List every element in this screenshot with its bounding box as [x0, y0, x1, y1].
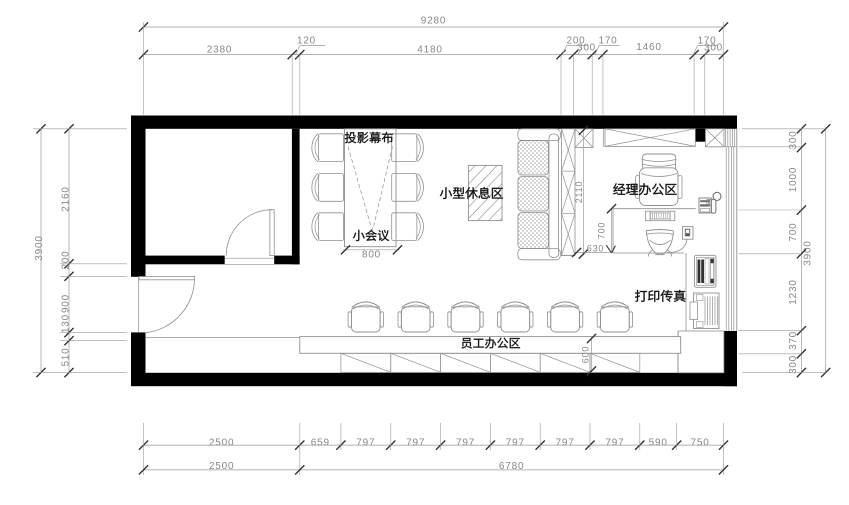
- svg-text:120: 120: [297, 36, 316, 47]
- svg-text:2160: 2160: [60, 186, 71, 211]
- svg-text:4180: 4180: [417, 44, 442, 55]
- svg-text:700: 700: [596, 222, 606, 239]
- svg-text:800: 800: [362, 250, 381, 261]
- svg-text:797: 797: [406, 437, 425, 448]
- svg-text:170: 170: [598, 36, 617, 47]
- svg-text:200: 200: [60, 250, 71, 269]
- svg-text:2500: 2500: [209, 461, 234, 472]
- svg-text:130: 130: [60, 314, 71, 333]
- svg-text:9280: 9280: [421, 16, 446, 27]
- svg-text:630: 630: [587, 243, 604, 253]
- svg-text:6780: 6780: [499, 461, 524, 472]
- svg-text:659: 659: [311, 437, 330, 448]
- svg-text:300: 300: [788, 355, 799, 374]
- svg-text:700: 700: [788, 222, 799, 241]
- svg-text:3900: 3900: [34, 235, 45, 260]
- svg-text:510: 510: [60, 347, 71, 366]
- svg-text:797: 797: [506, 437, 525, 448]
- svg-text:1230: 1230: [788, 279, 799, 304]
- svg-text:1000: 1000: [788, 167, 799, 192]
- svg-text:797: 797: [556, 437, 575, 448]
- svg-text:2500: 2500: [209, 437, 234, 448]
- svg-text:370: 370: [788, 331, 799, 350]
- svg-text:3900: 3900: [803, 240, 814, 265]
- svg-text:2380: 2380: [207, 44, 232, 55]
- svg-text:900: 900: [60, 294, 71, 313]
- svg-text:1460: 1460: [636, 42, 661, 53]
- svg-text:2110: 2110: [574, 181, 584, 204]
- svg-text:797: 797: [605, 437, 624, 448]
- svg-text:590: 590: [649, 437, 668, 448]
- svg-text:797: 797: [456, 437, 475, 448]
- svg-text:750: 750: [691, 437, 710, 448]
- svg-text:600: 600: [580, 346, 590, 363]
- svg-text:797: 797: [356, 437, 375, 448]
